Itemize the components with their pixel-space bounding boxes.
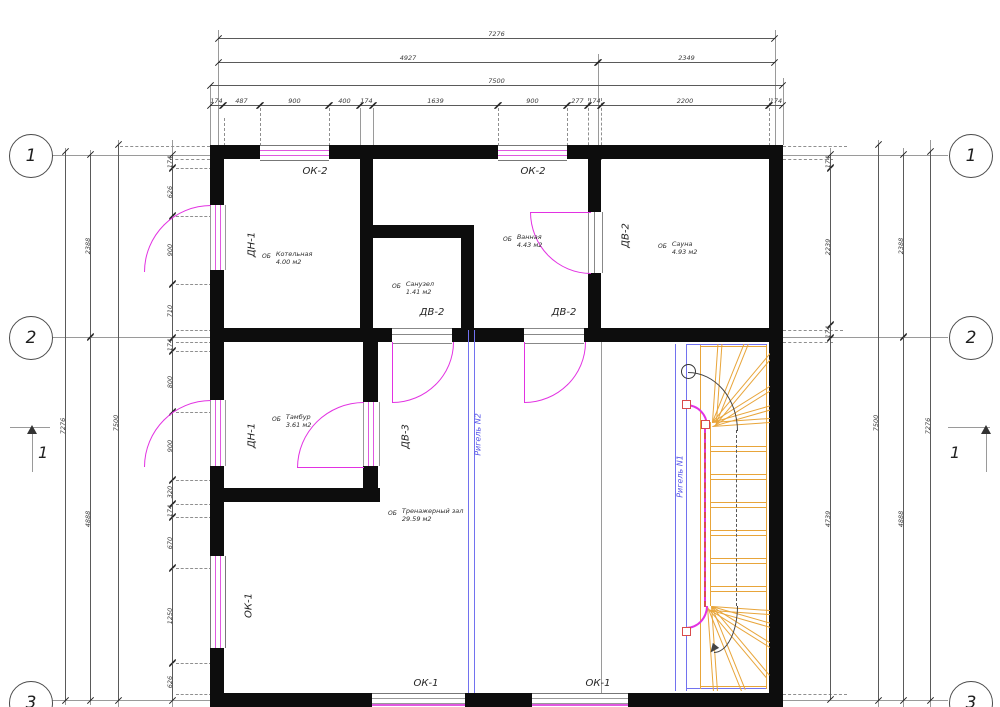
door-frame xyxy=(215,400,221,466)
window-ok1-left xyxy=(210,556,226,648)
door-frame xyxy=(524,334,584,335)
dim-label: 7276 xyxy=(924,418,932,435)
axis-number: 2 xyxy=(966,328,977,348)
wall-segment xyxy=(628,693,783,707)
extension-line xyxy=(775,30,776,145)
stair-edge xyxy=(686,688,767,689)
dashed-line xyxy=(783,146,847,147)
dim-label: 4888 xyxy=(84,510,92,527)
room-area: 4.43 м2 xyxy=(517,241,543,249)
dim-line: 174 xyxy=(769,105,783,106)
dim-line: 2388 xyxy=(90,155,91,337)
room-prefix: ОБ xyxy=(658,240,667,250)
wall-segment xyxy=(363,342,378,402)
dim-label: 1639 xyxy=(427,97,444,105)
door-frame xyxy=(215,205,221,270)
dim-label: 900 xyxy=(288,97,300,105)
room-label-tambur: ОБ Тамбур3.61 м2 xyxy=(272,413,311,429)
extension-line xyxy=(218,30,219,145)
stair-stringer xyxy=(700,686,767,687)
wall-segment xyxy=(210,693,372,707)
axis-number: 2 xyxy=(26,328,37,348)
axis-number: 3 xyxy=(966,693,977,707)
stair-stringer xyxy=(766,345,767,689)
wall-segment xyxy=(452,328,524,342)
dim-line: 1250 xyxy=(172,568,173,663)
dashed-line xyxy=(170,159,210,160)
room-prefix: ОБ xyxy=(388,507,397,517)
dim-label: 2239 xyxy=(824,238,832,255)
room-label-kotelnaya: ОБ Котельная4.00 м2 xyxy=(262,250,312,266)
dashed-line xyxy=(783,330,843,331)
dim-line: 900 xyxy=(498,105,567,106)
dim-label: 4888 xyxy=(897,510,905,527)
extension-line xyxy=(360,108,361,145)
dashed-line xyxy=(176,694,212,695)
window-ok1-bottom-left xyxy=(372,693,465,707)
opening-label-dv2: ДВ-2 xyxy=(621,208,632,264)
door-arc-dv2-b xyxy=(524,342,586,403)
axis-number: 1 xyxy=(966,146,977,166)
staircase xyxy=(670,344,770,691)
opening-label-dv2: ДВ-2 xyxy=(404,307,460,318)
dim-label: 7500 xyxy=(112,414,120,431)
room-label-sanuzel: ОБ Санузел1.41 м2 xyxy=(392,280,434,296)
dashed-line xyxy=(224,118,225,146)
opening-label-ok1: ОК-1 xyxy=(570,678,626,689)
stair-tread xyxy=(710,502,767,508)
handrail-post xyxy=(682,627,691,636)
dim-line: 7276 xyxy=(218,38,775,39)
window-glass xyxy=(260,150,329,156)
room-name: Тамбур xyxy=(286,413,312,421)
opening-label-ok2: ОК-2 xyxy=(287,166,343,177)
window-sill xyxy=(532,704,628,706)
dim-label: 710 xyxy=(166,305,174,317)
dashed-line xyxy=(567,108,568,146)
dim-label: 7276 xyxy=(59,418,67,435)
dashed-line xyxy=(176,517,212,518)
dim-label: 2388 xyxy=(897,238,905,255)
room-prefix: ОБ xyxy=(392,280,401,290)
wall-segment xyxy=(363,466,378,488)
stair-handrail xyxy=(686,606,708,629)
wall-segment xyxy=(588,273,601,328)
axis-number: 1 xyxy=(26,146,37,166)
section-arrow-icon xyxy=(27,420,37,434)
dim-label: 4927 xyxy=(400,54,417,62)
room-prefix: ОБ xyxy=(503,233,512,243)
dim-label: 1250 xyxy=(166,607,174,624)
dim-line: 626 xyxy=(172,663,173,700)
axis-bubble-left-1: 1 xyxy=(9,134,53,178)
dashed-line xyxy=(329,108,330,146)
dashed-line xyxy=(176,568,212,569)
dashed-line xyxy=(498,108,499,146)
room-area: 1.41 м2 xyxy=(406,288,434,296)
window-ok1-bottom-right xyxy=(532,693,628,707)
dim-line: 487 xyxy=(223,105,260,106)
dim-label: 174 xyxy=(360,97,372,105)
dim-label: 2349 xyxy=(678,54,695,62)
dim-line: 800 xyxy=(172,351,173,412)
wall-segment xyxy=(769,145,783,707)
wall-segment xyxy=(588,159,601,212)
stair-tread xyxy=(710,586,767,592)
room-name: Сауна xyxy=(672,240,698,248)
dim-label: 4739 xyxy=(824,510,832,527)
stair-walkline xyxy=(736,430,737,606)
room-prefix: ОБ xyxy=(262,250,271,260)
room-label-vannaya: ОБ Ванная4.43 м2 xyxy=(503,233,542,249)
room-name: Тренажерный зал xyxy=(402,507,464,515)
stair-tread xyxy=(710,446,767,452)
room-prefix: ОБ xyxy=(272,413,281,423)
wall-segment xyxy=(329,145,498,159)
dashed-line xyxy=(120,146,210,147)
dim-line: 7276 xyxy=(65,152,66,700)
opening-label-dn1: ДН-1 xyxy=(247,408,258,464)
wall-segment xyxy=(465,693,532,707)
dim-label: 174 xyxy=(588,97,600,105)
dim-label: 7276 xyxy=(488,30,505,38)
dim-label: 7500 xyxy=(872,414,880,431)
room-name: Санузел xyxy=(406,280,434,288)
door-frame xyxy=(368,402,374,466)
dim-label: 400 xyxy=(338,97,350,105)
door-arc-dn1-bottom xyxy=(144,400,211,467)
opening-label-ok2: ОК-2 xyxy=(505,166,561,177)
room-label-gym: ОБ Тренажерный зал29.59 м2 xyxy=(388,507,463,523)
door-jamb-dv3 xyxy=(363,402,380,466)
opening-label-dn1: ДН-1 xyxy=(247,217,258,273)
dim-line: 7500 xyxy=(878,145,879,700)
dim-label: 626 xyxy=(166,186,174,198)
dashed-line xyxy=(176,504,212,505)
axis-bubble-right-1: 1 xyxy=(949,134,993,178)
window-ok2-top-right xyxy=(498,145,567,161)
section-marker-line xyxy=(32,428,33,472)
window-sill xyxy=(372,704,465,706)
window-glass xyxy=(498,150,567,156)
dim-label: 277 xyxy=(571,97,583,105)
opening-label-ok1: ОК-1 xyxy=(244,578,255,634)
beam-label-n1: Ригель N1 xyxy=(676,445,685,509)
room-area: 4.00 м2 xyxy=(276,258,313,266)
section-marker-line xyxy=(986,428,987,472)
stair-stringer xyxy=(700,346,767,347)
section-label: 1 xyxy=(38,443,48,462)
wall-segment xyxy=(210,466,224,556)
dim-label: 7500 xyxy=(488,77,505,85)
axis-number: 3 xyxy=(26,693,37,707)
dim-line: 320 xyxy=(172,480,173,504)
dashed-line xyxy=(176,284,212,285)
door-arc-dv2-a xyxy=(392,342,454,403)
stair-handrail xyxy=(704,423,706,607)
door-jamb-dn1-bottom xyxy=(210,400,226,466)
dashed-line xyxy=(176,330,212,331)
section-label: 1 xyxy=(950,443,960,462)
dim-line: 710 xyxy=(172,284,173,338)
wall-segment xyxy=(461,238,474,328)
axis-bubble-right-2: 2 xyxy=(949,316,993,360)
room-area: 4.93 м2 xyxy=(672,248,698,256)
axis-bubble-left-2: 2 xyxy=(9,316,53,360)
floor-plan-canvas: 7276 4927 2349 7500 174 487 900 400 174 … xyxy=(0,0,1000,707)
dim-line: 1639 xyxy=(373,105,498,106)
extension-line xyxy=(601,342,602,693)
dashed-line xyxy=(176,168,212,169)
opening-label-ok1: ОК-1 xyxy=(398,678,454,689)
dim-line: 2349 xyxy=(598,62,775,63)
dim-label: 2388 xyxy=(84,238,92,255)
dim-line: 7500 xyxy=(118,145,119,700)
dashed-line xyxy=(260,108,261,146)
beam-line-n2 xyxy=(468,330,469,693)
stair-tread xyxy=(710,474,767,480)
axis-bubble-left-3: 3 xyxy=(9,681,53,707)
wall-segment xyxy=(210,145,224,205)
dim-line: 900 xyxy=(260,105,329,106)
dashed-line xyxy=(176,351,212,352)
dim-label: 900 xyxy=(526,97,538,105)
extension-line xyxy=(783,78,784,145)
room-label-sauna: ОБ Сауна4.93 м2 xyxy=(658,240,697,256)
dim-line: 7276 xyxy=(930,152,931,700)
wall-segment xyxy=(567,145,783,159)
room-name: Ванная xyxy=(517,233,543,241)
dashed-line xyxy=(176,663,212,664)
beam-line-n1 xyxy=(675,344,676,691)
room-area: 3.61 м2 xyxy=(286,421,312,429)
dim-line: 2388 xyxy=(903,155,904,337)
wall-segment xyxy=(210,328,392,342)
door-arc-dn1-top xyxy=(144,205,211,272)
section-arrow-icon xyxy=(981,420,991,434)
dashed-line xyxy=(176,342,212,343)
dim-label: 626 xyxy=(166,675,174,687)
axis-bubble-right-3: 3 xyxy=(949,681,993,707)
door-arc-dv3 xyxy=(297,402,364,468)
opening-label-dv2: ДВ-2 xyxy=(536,307,592,318)
dim-label: 487 xyxy=(235,97,247,105)
beam-line-n1 xyxy=(686,344,687,691)
dim-line: 2239 xyxy=(830,168,831,325)
room-name: Котельная xyxy=(276,250,313,258)
dim-line: 4888 xyxy=(903,337,904,700)
window-glass xyxy=(215,556,221,648)
dim-line: 626 xyxy=(172,168,173,216)
dim-line: 4927 xyxy=(218,62,598,63)
dim-line: 7500 xyxy=(210,85,783,86)
stair-tread xyxy=(710,558,767,564)
door-frame xyxy=(392,334,452,335)
door-frame xyxy=(594,212,595,273)
dim-label: 174 xyxy=(210,97,222,105)
dim-label: 2200 xyxy=(677,97,694,105)
dim-label: 670 xyxy=(166,536,174,548)
wall-segment xyxy=(584,328,783,342)
stair-direction-arrow-icon xyxy=(705,643,719,658)
dashed-line xyxy=(783,694,847,695)
door-jamb-dn1-top xyxy=(210,205,226,270)
wall-segment xyxy=(360,225,474,238)
extension-line xyxy=(210,85,211,145)
room-area: 29.59 м2 xyxy=(402,515,464,523)
wall-segment xyxy=(210,488,380,502)
dim-label: 320 xyxy=(166,486,174,498)
dim-line: 400 xyxy=(329,105,360,106)
dim-line: 4739 xyxy=(830,338,831,699)
beam-label-n2: Ригель N2 xyxy=(474,403,483,467)
dim-line: 4888 xyxy=(90,337,91,700)
dim-line: 2200 xyxy=(601,105,769,106)
extension-line xyxy=(373,108,374,145)
beam-line-n2 xyxy=(474,330,475,693)
opening-label-dv3: ДВ-3 xyxy=(401,409,412,465)
dim-label: 174 xyxy=(770,97,782,105)
dashed-line xyxy=(176,480,212,481)
dim-label: 800 xyxy=(166,375,174,387)
stair-edge xyxy=(686,344,767,345)
window-ok2-top-left xyxy=(260,145,329,161)
stair-tread xyxy=(710,530,767,536)
dim-line: 670 xyxy=(172,517,173,568)
dim-line: 277 xyxy=(567,105,588,106)
dashed-line xyxy=(783,342,833,343)
wall-segment xyxy=(360,159,373,328)
